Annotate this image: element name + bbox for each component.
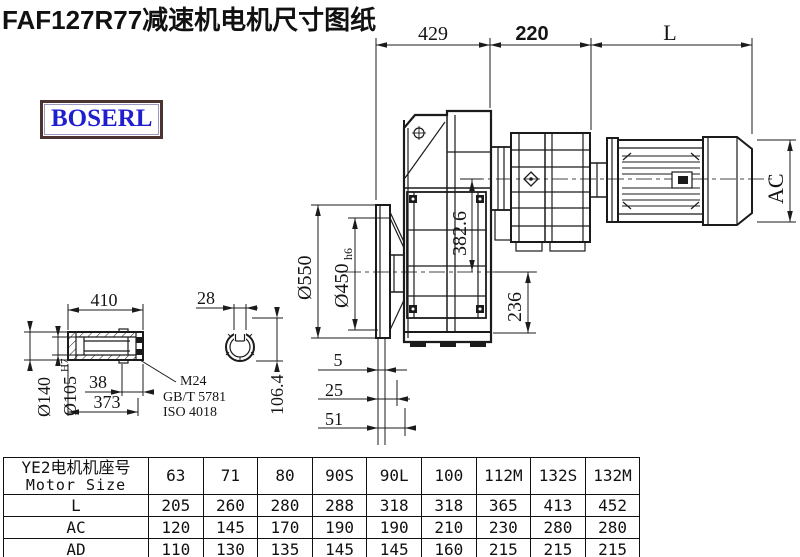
note-thread: M24 xyxy=(180,374,206,389)
dim-105: Ø105 xyxy=(60,376,80,416)
dim-140: Ø140 xyxy=(34,377,54,417)
dim-5: 5 xyxy=(334,350,343,370)
col-80: 80 xyxy=(258,458,313,495)
col-90L: 90L xyxy=(367,458,422,495)
table-row-AD: AD 110 130 135 145 145 160 215 215 215 xyxy=(4,539,640,557)
shaft-section-view xyxy=(196,304,283,372)
col-90S: 90S xyxy=(312,458,367,495)
dim-38: 38 xyxy=(89,372,107,392)
dim-450-tol: h6 xyxy=(341,248,355,260)
dim-373: 373 xyxy=(94,392,121,412)
note-std2: ISO 4018 xyxy=(163,405,217,420)
gearbox-housing xyxy=(404,111,491,347)
table-row-AC: AC 120 145 170 190 190 210 230 280 280 xyxy=(4,517,640,539)
dim-382: 382.6 xyxy=(449,211,471,256)
col-63: 63 xyxy=(149,458,204,495)
dim-450: Ø450 xyxy=(331,264,353,308)
terminal-box xyxy=(678,176,688,184)
dim-AC: AC xyxy=(763,173,788,204)
table-row-L: L 205 260 280 288 318 318 365 413 452 xyxy=(4,495,640,517)
output-flange xyxy=(376,205,404,338)
col-71: 71 xyxy=(203,458,258,495)
table-header-row: YE2电机机座号 Motor Size 63 71 80 90S 90L 100… xyxy=(4,458,640,495)
dim-28: 28 xyxy=(197,288,215,308)
dim-220: 220 xyxy=(515,23,548,45)
motor xyxy=(590,137,752,225)
note-std1: GB/T 5781 xyxy=(163,390,226,405)
table-header-label: YE2电机机座号 Motor Size xyxy=(4,458,149,495)
dim-106: 106.4 xyxy=(267,375,287,416)
dim-25: 25 xyxy=(325,380,343,400)
fan-cover xyxy=(703,137,752,225)
dim-410: 410 xyxy=(91,290,118,310)
dim-L: L xyxy=(663,20,676,45)
col-100: 100 xyxy=(421,458,476,495)
col-132M: 132M xyxy=(585,458,640,495)
drawing-sheet: FAF127R77减速机电机尺寸图纸 BOSERL xyxy=(0,0,800,557)
dim-51: 51 xyxy=(325,409,343,429)
dim-429: 429 xyxy=(418,23,448,45)
col-132S: 132S xyxy=(531,458,586,495)
main-view xyxy=(311,38,796,445)
dimension-labels: 429 220 L AC Ø550 Ø450 h6 382.6 236 410 … xyxy=(34,20,788,429)
input-gear-unit xyxy=(491,133,590,251)
dim-550: Ø550 xyxy=(294,256,316,300)
dim-236: 236 xyxy=(504,292,526,322)
dim-105-tol: H7 xyxy=(59,358,71,372)
motor-size-table: YE2电机机座号 Motor Size 63 71 80 90S 90L 100… xyxy=(3,457,640,557)
col-112M: 112M xyxy=(476,458,531,495)
